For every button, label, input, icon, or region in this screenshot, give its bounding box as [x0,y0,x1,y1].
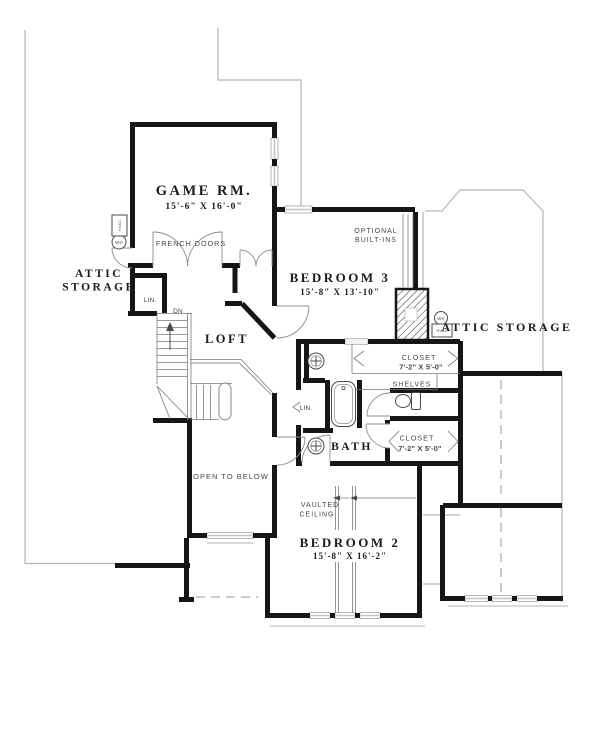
staircase [157,313,232,420]
floor-plan-canvas: WH HVAC WH HVAC GAME RM. 15'-6" X 16'-0"… [0,0,600,740]
window [465,596,488,602]
vaulted-ceiling-label-2: CEILING [299,512,334,519]
cased-opening [345,339,368,345]
bathtub-icon [332,382,356,427]
attic-storage-left-label-2: STORAGE [62,282,136,294]
attic-storage-left-label-1: ATTIC [75,268,123,280]
french-door-swing [240,250,256,266]
water-heater-icon: WH [112,235,126,249]
bedroom-2-dims: 15'-8" X 16'-2" [313,551,387,561]
down-arrow-icon [166,322,174,350]
french-door-swing [256,250,272,266]
door-swing-arc [277,306,309,338]
closet-lower-dims: 7'-2" X 5'-0" [398,444,442,453]
stair-newel [219,383,231,420]
down-label: DN [173,308,183,315]
game-room-label: GAME RM. [156,183,253,199]
attic-storage-right-label: ATTIC STORAGE [441,320,572,334]
french-door-swing [153,232,188,266]
open-to-below-label: OPEN TO BELOW [193,472,269,481]
door-swing-arc [367,393,390,416]
bath-label: BATH [331,441,373,453]
water-heater-label: WH [115,240,122,245]
built-ins-lines [403,214,413,287]
sink-icon [308,353,324,369]
hvac-unit-icon: HVAC [112,215,127,236]
window [285,206,312,213]
loft-label: LOFT [205,332,249,346]
optional-builtins-label-1: OPTIONAL [354,228,397,235]
window [271,138,278,159]
sink-icon [308,438,324,454]
window [310,613,330,619]
window [360,613,380,619]
hvac-label: HVAC [118,220,122,231]
floor-plan-page: WH HVAC WH HVAC GAME RM. 15'-6" X 16'-0"… [0,0,600,740]
bedroom-3-label: BEDROOM 3 [290,270,391,285]
linen-bath-label: LIN. [300,405,313,412]
window [517,596,537,602]
optional-builtins-label-2: BUILT-INS [355,237,397,244]
window [271,166,278,186]
window [335,613,355,619]
door-arcs [112,232,390,465]
bedroom-3-dims: 15'-8" X 13'-10" [300,287,380,297]
roof-outline [25,28,562,602]
french-doors-label: FRENCH DOORS [156,239,226,248]
closet-lower-label: CLOSET [400,434,435,443]
game-room-dims: 15'-6" X 16'-0" [165,202,242,212]
bedroom-2-label: BEDROOM 2 [300,535,401,550]
window [207,533,253,544]
closet-upper-label: CLOSET [402,353,437,362]
shelves-label: SHELVES [393,382,432,389]
closet-upper-dims: 7'-2" X 5'-0" [399,363,443,372]
linen-left-label: LIN. [144,297,157,304]
loft-railing [190,360,274,396]
toilet-icon [396,393,421,410]
french-door-swing [188,232,223,266]
vaulted-ceiling-label-1: VAULTED [301,502,339,509]
chimney [396,289,428,340]
window [492,596,512,602]
